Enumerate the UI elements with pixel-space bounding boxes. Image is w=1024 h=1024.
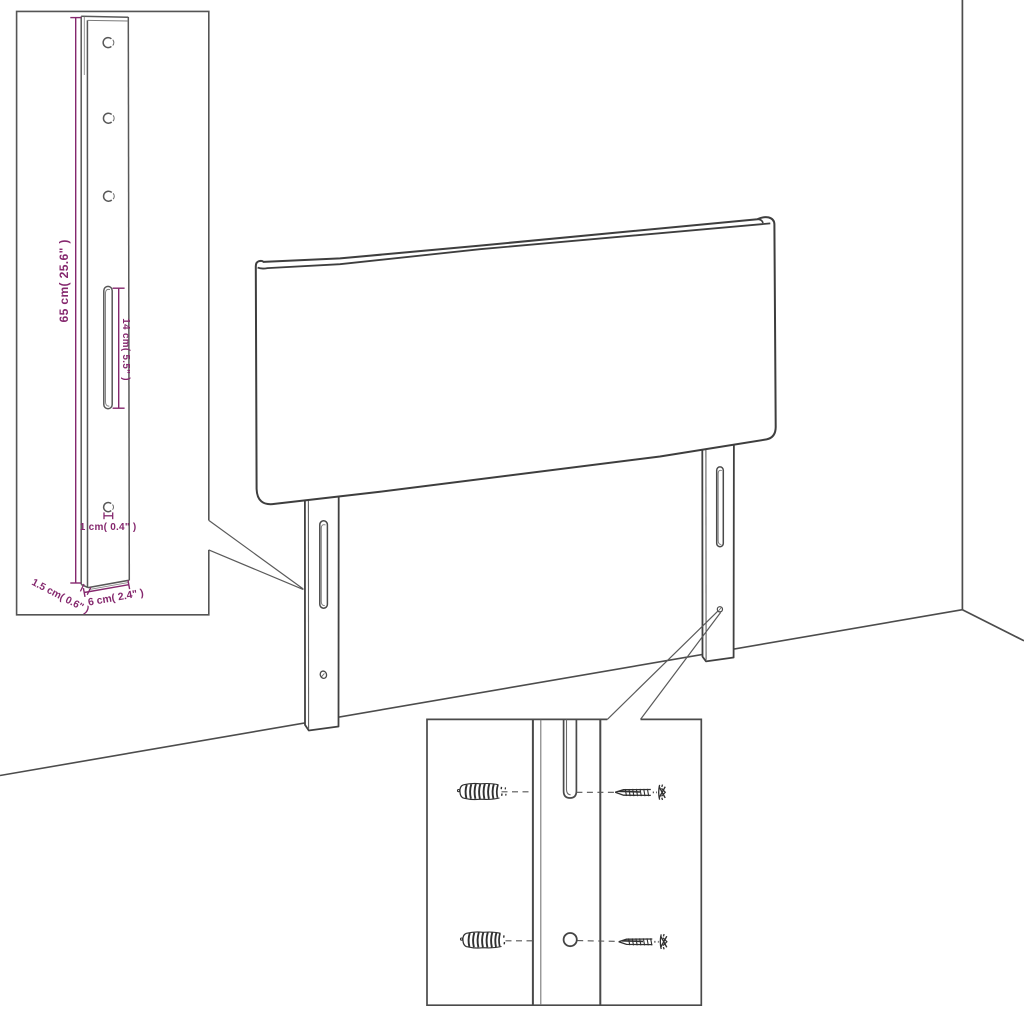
svg-text:1 cm( 0.4" ): 1 cm( 0.4" ) <box>80 522 137 533</box>
svg-text:14 cm( 5.5" ): 14 cm( 5.5" ) <box>120 318 131 381</box>
svg-text:65 cm( 25.6" ): 65 cm( 25.6" ) <box>57 239 71 322</box>
